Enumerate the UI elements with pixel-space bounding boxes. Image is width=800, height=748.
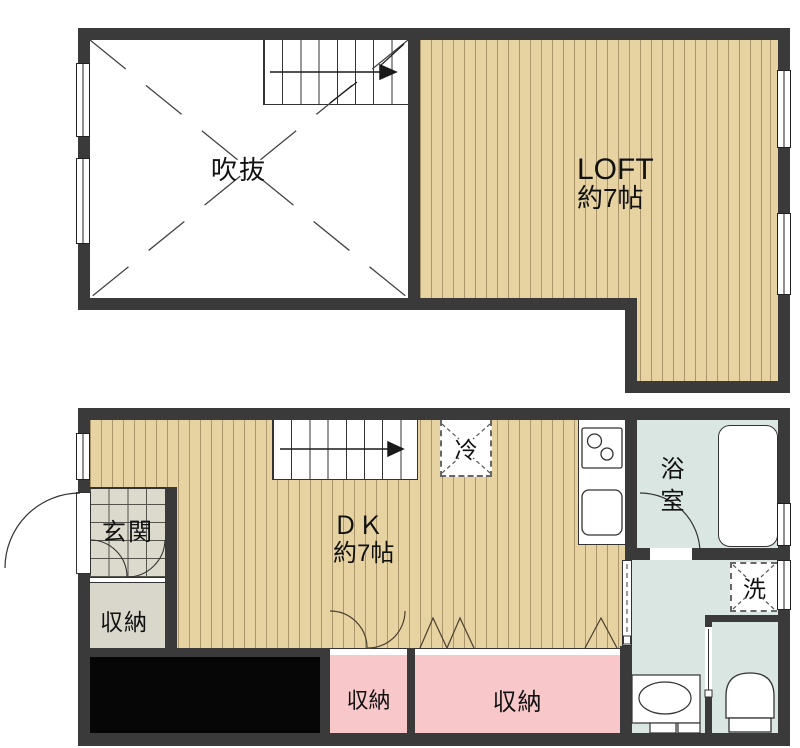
entrance-door-arc <box>5 493 80 568</box>
stove-icon <box>582 428 622 468</box>
void-room-label: 吹抜 <box>211 150 267 187</box>
loft-size: 約7帖 <box>577 184 654 213</box>
washer-corner-dashes <box>733 565 774 609</box>
kitchen-sink-icon <box>582 490 622 535</box>
entrance-label: 玄関 <box>102 512 154 547</box>
dk-name: ＤＫ <box>333 512 394 540</box>
bathroom-label: 浴室 <box>652 456 687 520</box>
dk-label: ＤＫ 約7帖 <box>333 512 394 568</box>
sliding-door-symbol <box>624 564 631 644</box>
storage-small-label: 収納 <box>330 683 407 715</box>
dk-size: 約7帖 <box>333 540 394 568</box>
stair-lower-arrow <box>280 442 403 456</box>
floor-plan-canvas: 冷 洗 <box>0 0 800 748</box>
storage-large-label: 収納 <box>415 682 620 717</box>
loft-label: LOFT 約7帖 <box>577 155 654 213</box>
refrigerator-corner-dashes <box>442 424 490 473</box>
washbasin-icon <box>632 675 700 733</box>
entrance-storage-label: 収納 <box>100 603 148 637</box>
storage-small-door-arcs <box>330 611 405 648</box>
loft-name: LOFT <box>577 155 654 184</box>
storage-large-folding-doors <box>420 618 617 648</box>
toilet-door-symbol <box>705 629 712 697</box>
stair-upper-arrow <box>270 44 404 103</box>
toilet-icon <box>726 673 774 732</box>
